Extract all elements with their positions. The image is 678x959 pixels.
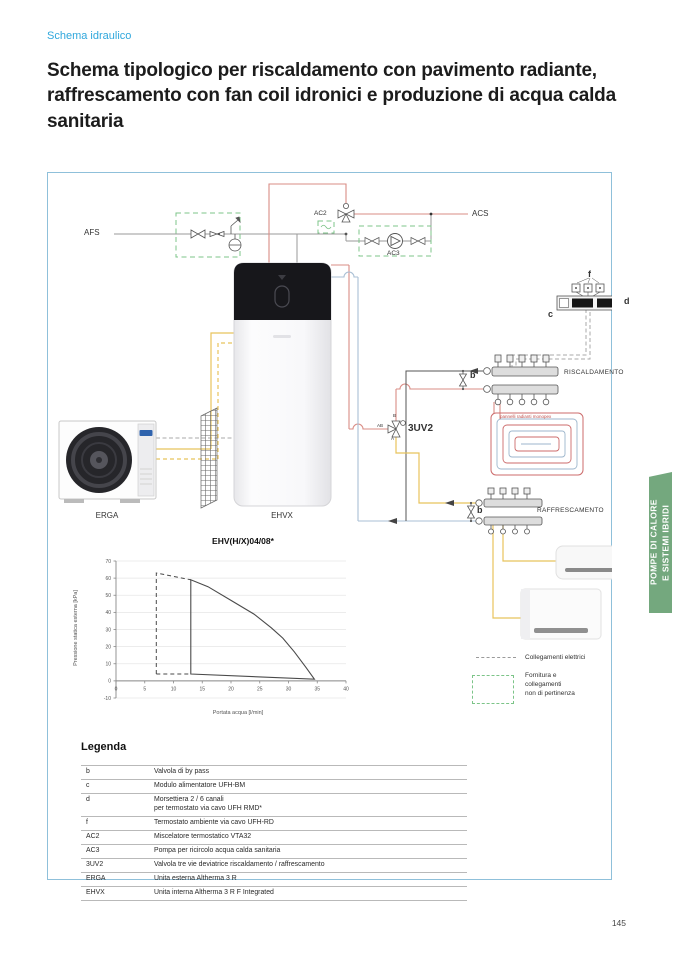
ac3-label: AC3 <box>387 250 400 257</box>
table-row: bValvola di by pass <box>81 766 467 780</box>
table-row: 3UV2Valvola tre vie deviatrice riscaldam… <box>81 858 467 872</box>
y-tick-label: 60 <box>105 576 111 582</box>
acs-label: ACS <box>472 209 488 218</box>
page-title: Schema tipologico per riscaldamento con … <box>47 58 625 134</box>
x-tick-label: 10 <box>171 686 177 692</box>
x-tick-label: 20 <box>228 686 234 692</box>
bypass-heating-label: b <box>470 370 476 380</box>
legenda-code: f <box>81 816 149 830</box>
section-eyebrow: Schema idraulico <box>47 30 131 42</box>
y-tick-label: 0 <box>108 679 111 685</box>
legenda-description: Pompa per ricircolo acqua calda sanitari… <box>149 844 467 858</box>
x-tick-label: 35 <box>314 686 320 692</box>
chart-title: EHV(H/X)04/08* <box>158 536 328 546</box>
legenda-description: Morsettiera 2 / 6 canali per termostato … <box>149 793 467 816</box>
refrigerant-lines <box>156 333 234 459</box>
x-tick-label: 5 <box>143 686 146 692</box>
table-row: dMorsettiera 2 / 6 canali per termostato… <box>81 793 467 816</box>
y-tick-label: 50 <box>105 593 111 599</box>
legenda-code: AC2 <box>81 830 149 844</box>
y-tick-label: 40 <box>105 610 111 616</box>
wall-section <box>201 408 217 508</box>
heating-zone-label: RISCALDAMENTO <box>564 369 624 376</box>
legenda-description: Modulo alimentatore UFH-BM <box>149 779 467 793</box>
chart-y-axis-label: Pressione statica esterna [kPa] <box>73 568 79 688</box>
3uv2-label: 3UV2 <box>408 423 433 434</box>
y-tick-label: 10 <box>105 662 111 668</box>
table-row: EHVXUnita interna Altherma 3 R F Integra… <box>81 886 467 900</box>
legenda-description: Unita esterna Altherma 3 R <box>149 872 467 886</box>
outdoor-unit-label: ERGA <box>86 511 128 520</box>
cold-water-lines <box>114 214 431 263</box>
boundary-legend-label: Fornitura e collegamenti non di pertinen… <box>525 671 575 698</box>
y-tick-label: 30 <box>105 627 111 633</box>
table-row: cModulo alimentatore UFH-BM <box>81 779 467 793</box>
table-row: fTermostato ambiente via cavo UFH-RD <box>81 816 467 830</box>
legenda-code: AC3 <box>81 844 149 858</box>
ac2-label: AC2 <box>314 210 327 217</box>
legenda-code: 3UV2 <box>81 858 149 872</box>
fancoil-wall-unit <box>556 546 612 579</box>
legenda-description: Valvola tre vie deviatrice riscaldamento… <box>149 858 467 872</box>
document-page: Schema idraulico Schema tipologico per r… <box>0 0 678 959</box>
chapter-tab: POMPE DI CALORE E SISTEMI IBRIDI <box>649 472 672 613</box>
electrical-legend-swatch <box>476 657 516 658</box>
x-tick-label: 40 <box>343 686 349 692</box>
pump-curve-chart: -100102030405060700510152025303540 <box>88 551 368 721</box>
module-d-label: d <box>624 296 630 306</box>
x-tick-label: 25 <box>257 686 263 692</box>
table-row: AC3Pompa per ricircolo acqua calda sanit… <box>81 844 467 858</box>
chapter-tab-label: POMPE DI CALORE E SISTEMI IBRIDI <box>649 472 672 613</box>
y-tick-label: 20 <box>105 644 111 650</box>
heating-return-line <box>406 371 483 521</box>
series-operating-envelope-min-speed <box>156 573 191 674</box>
ac3-pump <box>365 234 425 249</box>
chart-x-axis-label: Portata acqua [l/min] <box>158 710 318 716</box>
table-row: ERGAUnita esterna Altherma 3 R <box>81 872 467 886</box>
indoor-unit-tank <box>234 263 331 506</box>
x-tick-label: 0 <box>115 686 118 692</box>
radiant-floor-circuit <box>491 413 583 475</box>
legenda-description: Miscelatore termostatico VTA32 <box>149 830 467 844</box>
module-c-label: c <box>548 309 553 319</box>
filter-glyph <box>321 225 331 229</box>
ac2-mixing-valve <box>338 203 432 235</box>
3uv2-port-b: B <box>393 413 396 418</box>
page-number: 145 <box>592 918 626 928</box>
legenda-code: d <box>81 793 149 816</box>
radiant-panels-note: pannelli radianti monopex <box>500 414 551 419</box>
legenda-heading: Legenda <box>81 741 126 753</box>
bypass-cooling-label: b <box>477 505 483 515</box>
y-tick-label: -10 <box>104 696 111 702</box>
3uv2-valve <box>388 421 405 437</box>
table-row: AC2Miscelatore termostatico VTA32 <box>81 830 467 844</box>
legenda-code: EHVX <box>81 886 149 900</box>
flow-arrows <box>388 368 478 524</box>
legenda-code: c <box>81 779 149 793</box>
afs-label: AFS <box>84 228 100 237</box>
outdoor-unit <box>59 421 156 503</box>
boundary-legend-swatch <box>472 675 514 704</box>
legenda-description: Valvola di by pass <box>149 766 467 780</box>
return-lines <box>331 272 476 521</box>
indoor-unit-label: EHVX <box>261 511 303 520</box>
cooling-zone-label: RAFFRESCAMENTO <box>537 507 604 514</box>
legenda-code: ERGA <box>81 872 149 886</box>
electrical-legend-label: Collegamenti elettrici <box>525 653 585 662</box>
x-tick-label: 15 <box>199 686 205 692</box>
module-f-label: f <box>588 269 591 279</box>
ufh-control-module <box>557 278 612 310</box>
fancoil-console-unit <box>521 589 601 639</box>
diagram-frame: AFS ACS AC2 AC3 3UV2 AB B A b b c d f RI… <box>47 172 612 880</box>
legenda-table: bValvola di by passcModulo alimentatore … <box>81 765 467 901</box>
legenda-code: b <box>81 766 149 780</box>
x-tick-label: 30 <box>286 686 292 692</box>
3uv2-port-a: A <box>391 436 394 441</box>
legenda-description: Unita interna Altherma 3 R F Integrated <box>149 886 467 900</box>
3uv2-port-ab: AB <box>377 423 383 428</box>
legenda-description: Termostato ambiente via cavo UFH-RD <box>149 816 467 830</box>
y-tick-label: 70 <box>105 559 111 565</box>
